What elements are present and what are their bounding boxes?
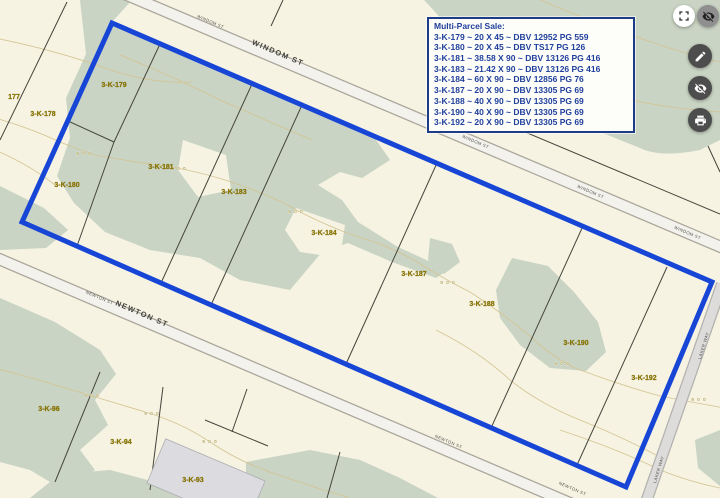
infobox-line: 3-K-187 ~ 20 X 90 ~ DBV 13305 PG 69: [434, 85, 628, 96]
parcel-map-viewer: 9 0 0 9 0 0 9 0 0 9 0 0 9 0 0 9 0 0 9 0 …: [0, 0, 720, 498]
parcel-label: 3-K-178: [30, 111, 55, 118]
infobox-line: 3-K-192 ~ 20 X 90 ~ DBV 13305 PG 69: [434, 117, 628, 128]
infobox-line: 3-K-184 ~ 60 X 90 ~ DBV 12856 PG 76: [434, 74, 628, 85]
multi-parcel-sale-infobox: Multi-Parcel Sale: 3-K-179 ~ 20 X 45 ~ D…: [427, 17, 635, 133]
fullscreen-button[interactable]: [673, 5, 695, 27]
svg-text:9 0 0: 9 0 0: [554, 361, 569, 366]
eye-slash-icon: [702, 10, 715, 23]
svg-text:9 0 0: 9 0 0: [202, 439, 217, 444]
infobox-line: 3-K-179 ~ 20 X 45 ~ DBV 12952 PG 559: [434, 32, 628, 43]
parcel-label: 3-K-180: [54, 182, 79, 189]
svg-text:9 0 0: 9 0 0: [691, 397, 706, 402]
parcel-label: 3-K-181: [148, 164, 173, 171]
parcel-label: 3-K-187: [401, 271, 426, 278]
parcel-label: 3-K-96: [38, 406, 60, 413]
parcel-label: 3-K-183: [221, 189, 246, 196]
svg-text:9 0 0: 9 0 0: [171, 166, 186, 171]
parcel-label: 3-K-184: [311, 230, 336, 237]
infobox-line: 3-K-188 ~ 40 X 90 ~ DBV 13305 PG 69: [434, 96, 628, 107]
pencil-icon: [694, 50, 707, 63]
infobox-line: 3-K-180 ~ 20 X 45 ~ DBV TS17 PG 126: [434, 42, 628, 53]
print-button[interactable]: [688, 108, 712, 132]
parcel-label: 177: [8, 94, 20, 101]
edit-button[interactable]: [688, 44, 712, 68]
svg-text:9 0 0: 9 0 0: [288, 209, 303, 214]
printer-icon: [694, 114, 707, 127]
parcel-label: 3-K-192: [631, 375, 656, 382]
infobox-line: 3-K-183 ~ 21.42 X 90 ~ DBV 13126 PG 416: [434, 64, 628, 75]
parcel-label: 3-K-190: [563, 340, 588, 347]
infobox-title: Multi-Parcel Sale:: [434, 21, 628, 32]
fullscreen-icon: [678, 10, 690, 22]
parcel-label: 3-K-94: [110, 439, 132, 446]
infobox-line: 3-K-181 ~ 38.58 X 90 ~ DBV 13126 PG 416: [434, 53, 628, 64]
parcel-label: 3-K-93: [182, 477, 204, 484]
eye-slash-icon: [694, 82, 707, 95]
parcel-label: 3-K-188: [469, 301, 494, 308]
svg-text:9 0 0: 9 0 0: [144, 411, 159, 416]
hide-overlay-button[interactable]: [697, 5, 719, 27]
svg-text:9 0 0: 9 0 0: [440, 280, 455, 285]
svg-text:9 0 0: 9 0 0: [76, 151, 91, 156]
svg-text:9 0 0: 9 0 0: [84, 393, 99, 398]
parcel-label: 3-K-179: [101, 82, 126, 89]
infobox-line: 3-K-190 ~ 40 X 90 ~ DBV 13305 PG 69: [434, 107, 628, 118]
toggle-visibility-button[interactable]: [688, 76, 712, 100]
